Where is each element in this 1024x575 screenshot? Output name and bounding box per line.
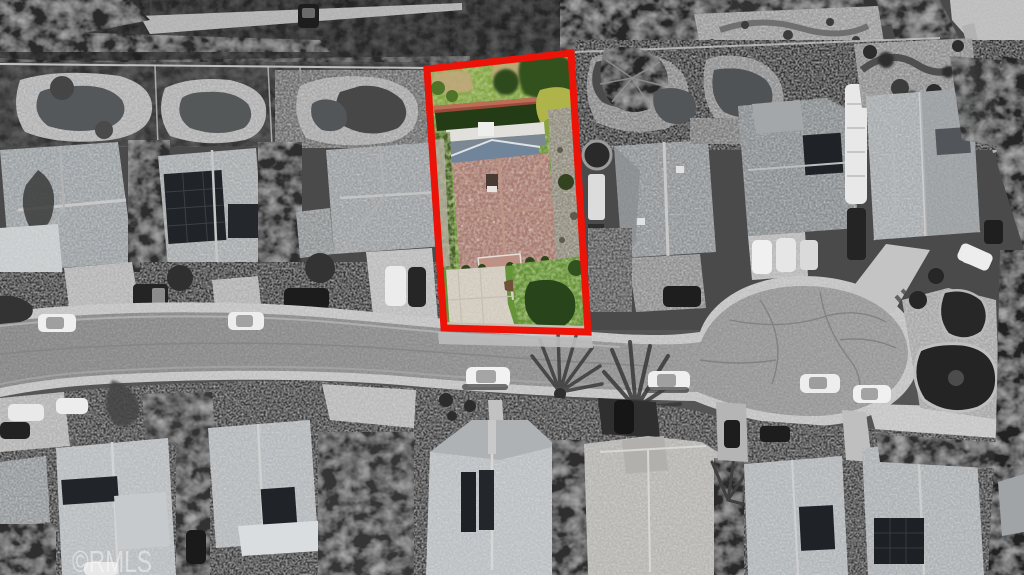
svg-text:©RMLS: ©RMLS [72,544,152,575]
